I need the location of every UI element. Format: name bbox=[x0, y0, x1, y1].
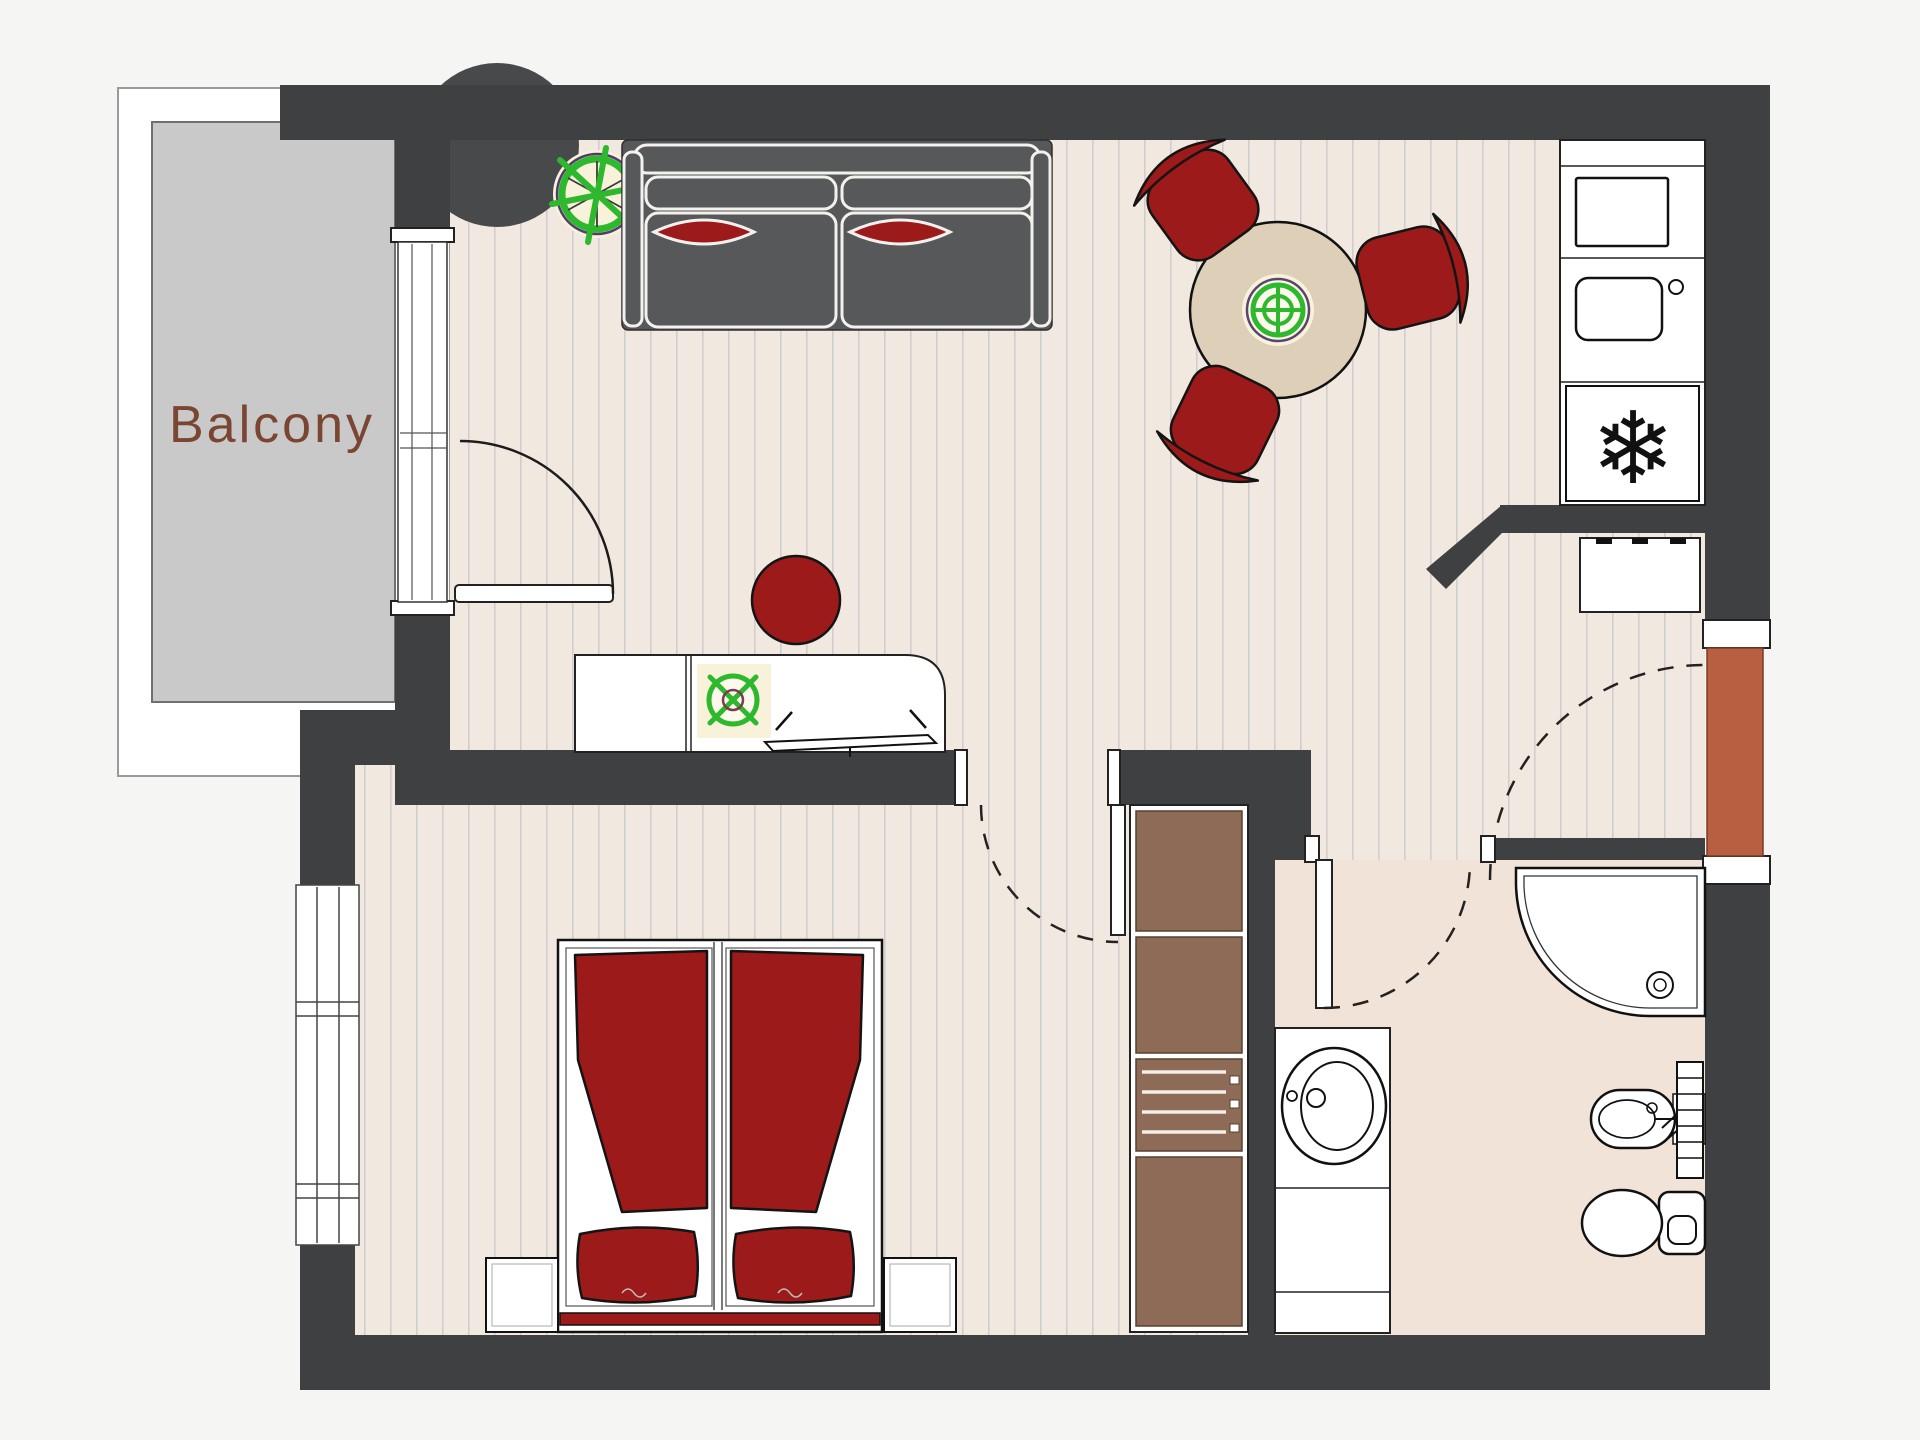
door-jamb bbox=[1703, 856, 1770, 884]
washbasin bbox=[1282, 1048, 1386, 1164]
kitchen-counter: ❄ bbox=[1560, 140, 1705, 505]
shower-drain bbox=[1647, 972, 1673, 998]
sofa-back-rail bbox=[634, 145, 1040, 173]
door-leaf bbox=[1316, 860, 1332, 1008]
glazing-frame bbox=[398, 242, 447, 602]
toilet-bowl bbox=[1582, 1190, 1662, 1256]
wall-segment bbox=[280, 85, 1770, 140]
pendant-lamp-icon bbox=[1242, 274, 1314, 346]
sofa-armrest bbox=[1032, 152, 1050, 326]
washbasin-counter bbox=[1275, 1028, 1390, 1333]
entry-door-leaf bbox=[1707, 648, 1763, 856]
wardrobe-door bbox=[1136, 1157, 1242, 1326]
fridge-freezer: ❄ bbox=[1566, 386, 1699, 505]
desk-stool bbox=[752, 556, 840, 644]
wardrobe bbox=[1130, 805, 1248, 1332]
floor-plan-page: Balcony bbox=[0, 0, 1920, 1440]
wall-segment bbox=[395, 750, 955, 805]
wall-segment bbox=[1120, 750, 1311, 805]
desk-lamp-icon bbox=[709, 676, 757, 724]
door-jamb bbox=[391, 228, 454, 242]
headboard bbox=[560, 1313, 880, 1325]
faucet-icon bbox=[1307, 1089, 1325, 1107]
wardrobe-door bbox=[1136, 811, 1242, 931]
kitchen-sink bbox=[1576, 178, 1668, 246]
door-leaf bbox=[455, 585, 613, 602]
floor-plan-canvas: Balcony bbox=[0, 0, 1920, 1440]
wall-segment bbox=[1705, 884, 1770, 1390]
nightstand-right bbox=[884, 1258, 956, 1332]
bed-pillow bbox=[577, 1227, 697, 1302]
desk bbox=[575, 655, 945, 757]
wall-segment bbox=[300, 1245, 355, 1335]
door-jamb bbox=[391, 601, 454, 615]
door-jamb bbox=[1305, 836, 1319, 862]
wall-segment bbox=[1248, 838, 1275, 1335]
wall-segment bbox=[1705, 85, 1770, 622]
sofa bbox=[622, 140, 1052, 330]
toilet bbox=[1582, 1190, 1705, 1256]
hall-cabinet bbox=[1580, 538, 1700, 612]
sofa-armrest bbox=[624, 152, 642, 326]
door-jamb bbox=[1108, 750, 1120, 805]
wall-segment bbox=[395, 605, 450, 765]
snowflake-icon: ❄ bbox=[1591, 393, 1675, 505]
door-jamb bbox=[1481, 836, 1495, 862]
door-jamb bbox=[1703, 620, 1770, 648]
towel-radiator bbox=[1677, 1062, 1703, 1178]
bedroom-window bbox=[296, 885, 359, 1245]
nightstand-left bbox=[486, 1258, 558, 1332]
wall-segment bbox=[1248, 805, 1311, 838]
sofa-back-cushion bbox=[646, 177, 836, 209]
wall-segment bbox=[300, 1335, 1770, 1390]
balcony-label: Balcony bbox=[169, 396, 375, 454]
bed bbox=[558, 940, 882, 1332]
wardrobe-drawers bbox=[1136, 1059, 1242, 1151]
wall-segment bbox=[395, 140, 450, 240]
door-leaf bbox=[1111, 805, 1125, 935]
wardrobe-door bbox=[1136, 937, 1242, 1053]
bed-pillow bbox=[733, 1227, 853, 1302]
sofa-back-cushion bbox=[842, 177, 1032, 209]
wall-segment bbox=[1500, 505, 1705, 533]
wall-segment bbox=[1487, 838, 1705, 860]
door-jamb bbox=[955, 750, 967, 805]
